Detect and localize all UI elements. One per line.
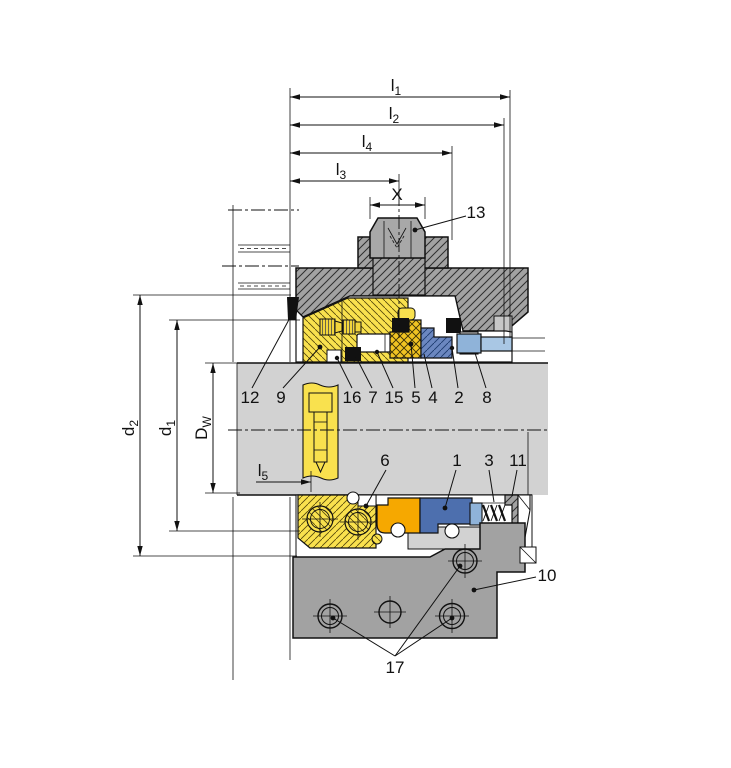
- dim-dw: DW: [192, 416, 214, 440]
- part-label-17: 17: [386, 658, 405, 677]
- clamp-screw: [303, 383, 338, 480]
- part-label-6: 6: [380, 451, 389, 470]
- o-ring-7: [345, 347, 361, 361]
- dim-d2: d2: [119, 420, 141, 436]
- part-label-11: 11: [509, 451, 527, 470]
- fitting-tube: [481, 337, 512, 351]
- seal-assembly-drawing: l1 l2 l4 l3 X l5 d2 d1 DW 12 9 16 7 15 5…: [0, 0, 731, 768]
- part-label-7: 7: [368, 388, 377, 407]
- dim-l3: l3: [336, 160, 347, 182]
- dim-l1: l1: [391, 76, 402, 98]
- drawing-canvas: l1 l2 l4 l3 X l5 d2 d1 DW 12 9 16 7 15 5…: [0, 0, 731, 768]
- dim-l4: l4: [362, 132, 373, 154]
- dim-d1: d1: [156, 420, 178, 436]
- part-label-3: 3: [484, 451, 493, 470]
- part-label-5: 5: [411, 388, 420, 407]
- part-label-2: 2: [454, 388, 463, 407]
- part-label-9: 9: [276, 388, 285, 407]
- part-label-10: 10: [538, 566, 557, 585]
- part-label-4: 4: [428, 388, 437, 407]
- part-label-13: 13: [467, 203, 486, 222]
- part-label-15: 15: [385, 388, 404, 407]
- dim-l2: l2: [389, 104, 400, 126]
- o-ring-b: [446, 318, 461, 333]
- hex-plug: [370, 218, 425, 258]
- part-label-8: 8: [482, 388, 491, 407]
- part-label-16: 16: [343, 388, 362, 407]
- dim-x: X: [391, 185, 402, 204]
- set-screw: [320, 319, 335, 335]
- part-label-1: 1: [452, 451, 461, 470]
- part-label-12: 12: [241, 388, 260, 407]
- shaft: [237, 363, 548, 495]
- fitting-body: [457, 334, 481, 353]
- set-screw-2: [343, 320, 355, 334]
- drive-pin: [357, 334, 391, 352]
